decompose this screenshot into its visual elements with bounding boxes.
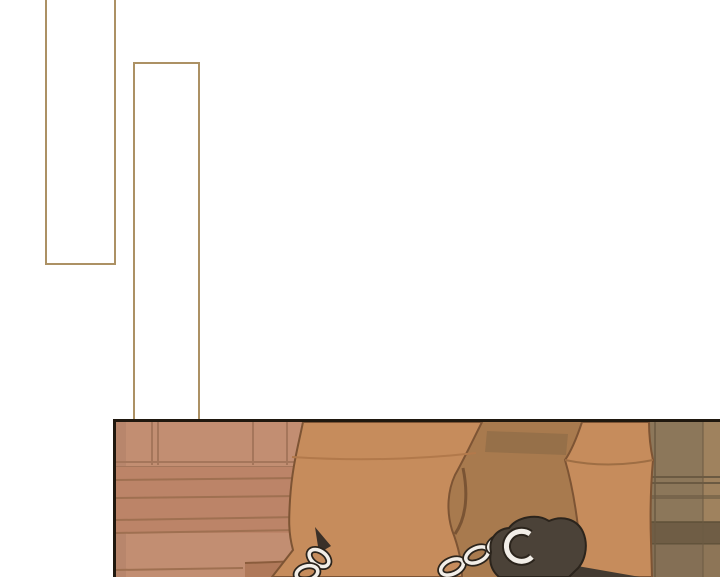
strap-patch [485,431,568,455]
comic-page [0,0,720,577]
panel-illustration [116,422,720,577]
comic-art-panel [113,419,720,577]
wall-boards [116,467,303,533]
speech-bubble-1 [45,0,116,265]
